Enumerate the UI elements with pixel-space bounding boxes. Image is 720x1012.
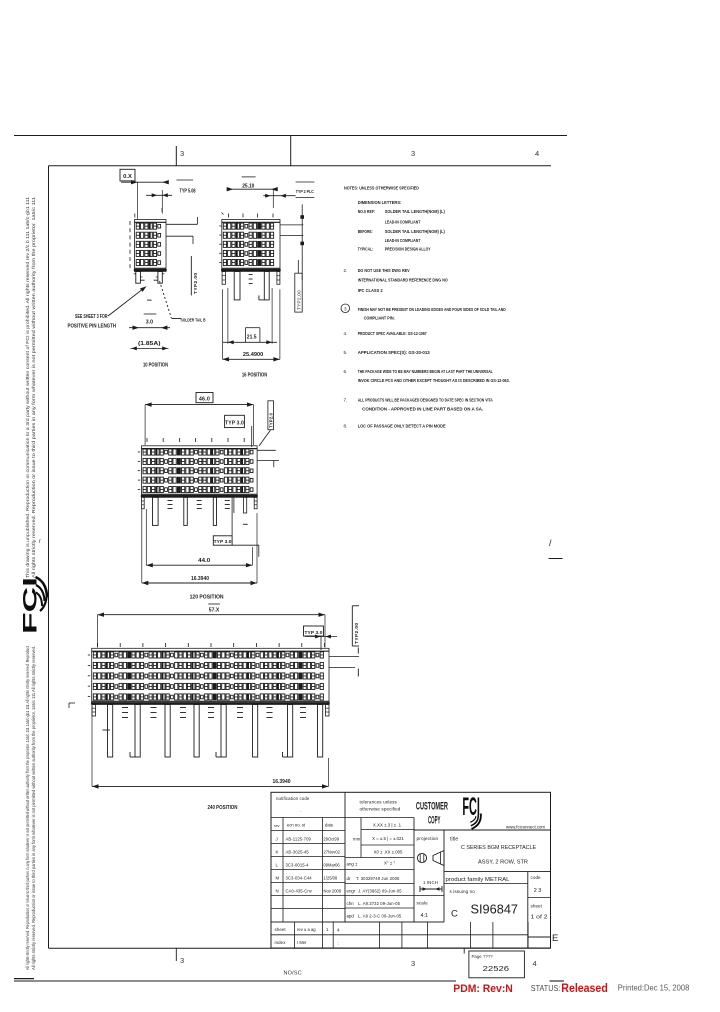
svg-text:E: E [552, 933, 558, 944]
svg-text:.: . [300, 808, 301, 813]
svg-text:5.: 5. [344, 350, 348, 355]
svg-text:3: 3 [411, 149, 415, 158]
svg-text:1 of 2: 1 of 2 [531, 915, 548, 921]
svg-text:ALL PRODUCTS WILL BE PACKAGED: ALL PRODUCTS WILL BE PACKAGED DESIGNED T… [358, 398, 494, 403]
svg-text:L. A9.3732 09-Jun-05: L. A9.3732 09-Jun-05 [358, 901, 401, 906]
svg-text:s issuing no: s issuing no [450, 889, 476, 894]
svg-text:X.XX ±.3 | ± .1: X.XX ±.3 | ± .1 [373, 823, 402, 828]
svg-text:25.4900: 25.4900 [243, 352, 264, 358]
svg-text:ecn no. st: ecn no. st [287, 823, 306, 828]
svg-text:TYP 5.08: TYP 5.08 [180, 189, 196, 195]
svg-text:All rights strictly reserved.: All rights strictly reserved. Reproducti… [31, 196, 36, 578]
svg-text:CONDITION - APPROVED IN LINE P: CONDITION - APPROVED IN LINE PART BASED … [362, 407, 483, 412]
svg-text:SI96847: SI96847 [471, 903, 519, 917]
svg-text:NOTES: UNLESS OTHERWISE SPECI: NOTES: UNLESS OTHERWISE SPECIFIED [344, 185, 419, 190]
svg-text:3: 3 [180, 149, 184, 158]
svg-text:16.3940: 16.3940 [191, 576, 209, 582]
svg-text:TYPICAL:: TYPICAL: [358, 246, 374, 251]
svg-text:title: title [450, 836, 458, 842]
svg-text:L. A9 2-3-C 09-Jun-05: L. A9 2-3-C 09-Jun-05 [358, 913, 402, 918]
svg-text:SOLDER TAIL LENGTH(NOM) (L): SOLDER TAIL LENGTH(NOM) (L) [385, 209, 445, 214]
svg-text:FINISH MAY NOT BE PRESENT ON L: FINISH MAY NOT BE PRESENT ON LEADING EDG… [358, 307, 506, 312]
svg-text:C: C [451, 909, 458, 920]
svg-text:AB-3025-45: AB-3025-45 [286, 850, 310, 855]
svg-text:4:1: 4:1 [421, 913, 429, 919]
svg-text:X = ±.5 | = ±.021: X = ±.5 | = ±.021 [372, 836, 404, 841]
svg-text:J: J [276, 837, 278, 842]
svg-text:SOLDER TAIL LENGTH(NOM) (L): SOLDER TAIL LENGTH(NOM) (L) [385, 229, 445, 234]
svg-text:X° ± °: X° ± ° [384, 861, 396, 866]
svg-text:rev u a ag: rev u a ag [297, 927, 316, 932]
svg-text:LOC OF PASSAGE ONLY DETECT A P: LOC OF PASSAGE ONLY DETECT A PIN MODE [358, 424, 446, 429]
svg-text:21.5: 21.5 [247, 335, 257, 341]
svg-text:1/25/08: 1/25/08 [324, 876, 338, 881]
svg-text:STATUS:: STATUS: [531, 983, 561, 993]
svg-text:Page ????: Page ???? [472, 954, 494, 959]
svg-text:LEAD-IN COMPLIANT: LEAD-IN COMPLIANT [385, 238, 421, 243]
svg-text:TYP2.00: TYP2.00 [297, 290, 302, 310]
svg-text:NO/SC: NO/SC [284, 971, 302, 977]
svg-text:tolerances unless: tolerances unless [360, 800, 398, 805]
svg-text:57.X: 57.X [209, 608, 220, 614]
svg-text:K: K [276, 850, 279, 855]
svg-text:3C3-034-C44: 3C3-034-C44 [286, 876, 313, 881]
svg-text:projection: projection [417, 836, 439, 842]
svg-text:09Mar06: 09Mar06 [324, 863, 341, 868]
svg-text:ang ±: ang ± [347, 862, 359, 867]
svg-text:CUSTOMER: CUSTOMER [416, 801, 448, 813]
svg-text:NO.5 REF:: NO.5 REF: [358, 209, 376, 214]
svg-text:3C3-0015-4: 3C3-0015-4 [286, 863, 310, 868]
svg-text:T. 30329749 Jun 2005: T. 30329749 Jun 2005 [356, 876, 400, 881]
svg-text:2 3: 2 3 [534, 888, 542, 894]
svg-text:16.3940: 16.3940 [273, 779, 291, 785]
svg-text:J. AY(3662) 09-Jun-05: J. AY(3662) 09-Jun-05 [358, 889, 402, 894]
svg-text:BEFORE:: BEFORE: [358, 229, 373, 234]
svg-text:APPLICATION SPEC(S): GS-20-013: APPLICATION SPEC(S): GS-20-013 [358, 350, 430, 355]
svg-text:TYP 3.0: TYP 3.0 [305, 630, 323, 636]
svg-text:1 INCH: 1 INCH [423, 880, 438, 885]
svg-text:All rights strictly reserved.: All rights strictly reserved. Reproducti… [31, 646, 36, 970]
svg-text:FCI: FCI [462, 793, 480, 821]
svg-text::: : [338, 941, 339, 946]
svg-text:27Nov02: 27Nov02 [324, 850, 341, 855]
svg-text:engr: engr [347, 889, 356, 894]
svg-text:SEE SHEET 3 FOR: SEE SHEET 3 FOR [75, 314, 108, 320]
svg-text:TYP 3.0: TYP 3.0 [214, 539, 232, 545]
svg-text:PDM: Rev:N: PDM: Rev:N [453, 983, 513, 995]
svg-text:COMPLIANT PIN.: COMPLIANT PIN. [364, 315, 395, 320]
svg-text:6.: 6. [344, 369, 348, 374]
svg-text:dr: dr [347, 876, 351, 881]
svg-text:PRECISION DESIGN ALLOY: PRECISION DESIGN ALLOY [385, 246, 431, 251]
svg-text:3.0: 3.0 [146, 319, 153, 325]
svg-text:INTERNATIONAL STANDARD REFEREN: INTERNATIONAL STANDARD REFERENCE DWG NO [358, 278, 448, 283]
svg-text:I Mer: I Mer [297, 940, 307, 945]
svg-text:4: 4 [535, 149, 539, 158]
svg-text:C SERIES BGM RECEPTACLE: C SERIES BGM RECEPTACLE [461, 845, 536, 851]
svg-text:TYP2.00: TYP2.00 [193, 273, 199, 294]
svg-text:22526: 22526 [483, 966, 510, 973]
svg-text:X0 ± .XX ±.005: X0 ± .XX ±.005 [374, 850, 403, 855]
svg-text:240 POSITION: 240 POSITION [208, 805, 238, 811]
svg-text:4.: 4. [344, 331, 348, 336]
svg-text:3: 3 [180, 956, 184, 965]
svg-text:rev: rev [274, 823, 280, 828]
svg-text:TYP2.0: TYP2.0 [268, 412, 273, 428]
svg-text:mm: mm [353, 837, 361, 842]
svg-text:16 POSITION: 16 POSITION [242, 372, 267, 378]
svg-text:COPY: COPY [428, 815, 441, 827]
svg-text:THE PACKAGE WIDE TO BE MAY NUM: THE PACKAGE WIDE TO BE MAY NUMBERS BEGIN… [358, 369, 493, 374]
svg-text:Released: Released [561, 983, 608, 995]
svg-text:Printed:Dec 15, 2008: Printed:Dec 15, 2008 [618, 984, 690, 993]
svg-text:LEAD-IN COMPLIANT: LEAD-IN COMPLIANT [385, 219, 421, 224]
svg-text:46.0: 46.0 [199, 397, 210, 403]
svg-text:AB-1125-709: AB-1125-709 [286, 837, 312, 842]
svg-text:25.10: 25.10 [242, 183, 254, 189]
svg-text:This drawing is unpublished.: This drawing is unpublished. Reproductio… [25, 196, 30, 578]
svg-text:INVOK CIRCLE PCS AND OTHER EXC: INVOK CIRCLE PCS AND OTHER EXCEPT THOUGH… [358, 378, 510, 383]
svg-text:10 POSITION: 10 POSITION [143, 363, 168, 369]
svg-text:SOLDER TAIL B: SOLDER TAIL B [181, 317, 207, 322]
svg-text:N: N [276, 889, 279, 894]
svg-text:4: 4 [533, 959, 537, 968]
svg-text:2.: 2. [344, 268, 348, 273]
svg-text:7.: 7. [344, 398, 348, 403]
svg-text:8.: 8. [344, 424, 348, 429]
svg-text:M: M [276, 876, 280, 881]
svg-text:TYP 2 PLC: TYP 2 PLC [296, 189, 314, 195]
svg-text:120 POSITION: 120 POSITION [190, 594, 224, 600]
svg-text:date: date [325, 823, 334, 828]
svg-text:otherwise specified: otherwise specified [360, 807, 401, 812]
svg-text:product family METRAL: product family METRAL [446, 877, 510, 883]
svg-text:(1.85A): (1.85A) [138, 341, 161, 347]
svg-text:scale: scale [417, 901, 429, 906]
svg-text:code: code [531, 875, 542, 880]
svg-text:3: 3 [411, 959, 415, 968]
svg-text:index: index [275, 940, 287, 945]
svg-text:TYP 3.0: TYP 3.0 [225, 421, 244, 427]
svg-text:sheet: sheet [275, 927, 287, 932]
svg-text:CA0-435-Cnv: CA0-435-Cnv [286, 889, 313, 894]
svg-text:sheet: sheet [531, 904, 543, 909]
svg-text:chn: chn [347, 901, 355, 906]
svg-text:DIMENSION LETTERS:: DIMENSION LETTERS: [358, 200, 402, 205]
svg-text:POSITIVE PIN LENGTH: POSITIVE PIN LENGTH [68, 324, 117, 330]
svg-text:29Oct99: 29Oct99 [324, 837, 340, 842]
svg-text:IPC CLASS 2: IPC CLASS 2 [358, 288, 383, 293]
svg-text:notification code: notification code [276, 796, 310, 801]
svg-text:4: 4 [337, 928, 340, 933]
svg-text:TYP2.00: TYP2.00 [354, 623, 360, 644]
svg-text:apd: apd [347, 913, 355, 918]
svg-text:www.fciconnect.com: www.fciconnect.com [506, 824, 546, 829]
svg-text:DO NOT USE THIS DWG REV: DO NOT USE THIS DWG REV [358, 268, 410, 273]
svg-text:r: r [39, 539, 41, 545]
svg-text:44.0: 44.0 [198, 558, 210, 564]
svg-text:All rights strictly reserved.: All rights strictly reserved. Reproducti… [25, 645, 30, 970]
svg-text:0.X: 0.X [123, 174, 132, 180]
svg-text:3: 3 [344, 306, 347, 311]
svg-text:ASSY, 2 ROW, STR: ASSY, 2 ROW, STR [478, 860, 528, 866]
svg-text:PRODUCT SPEC AVAILABLE: GS-12-: PRODUCT SPEC AVAILABLE: GS-12-1067 [358, 331, 427, 336]
svg-text:Nov 2008: Nov 2008 [324, 889, 342, 894]
